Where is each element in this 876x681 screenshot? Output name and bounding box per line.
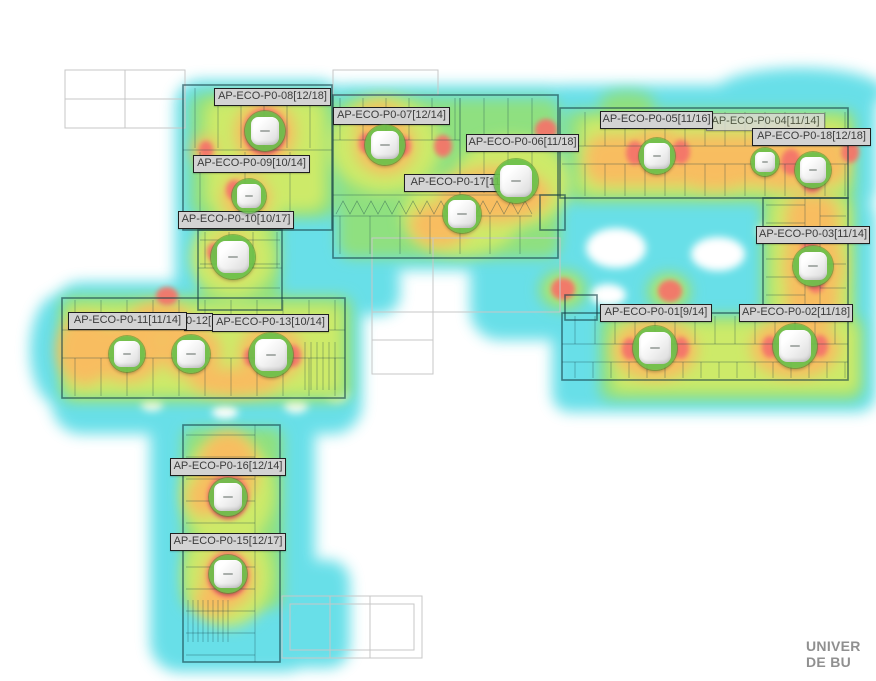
ap-icon-ap-eco-p0-17[interactable]: [443, 195, 481, 233]
ap-icon-ap-eco-p0-11[interactable]: [109, 336, 145, 372]
ap-icon-ap-eco-p0-04[interactable]: [751, 148, 779, 176]
ap-led-slot: [260, 130, 270, 132]
ap-icon-ap-eco-p0-16[interactable]: [209, 478, 247, 516]
ap-icon-ap-eco-p0-01[interactable]: [633, 326, 677, 370]
ap-icon-ap-eco-p0-10[interactable]: [211, 235, 255, 279]
ap-led-slot: [650, 347, 661, 349]
ap-led-slot: [266, 354, 277, 356]
access-point-device-icon: [177, 340, 204, 367]
ap-led-slot: [511, 180, 522, 182]
wifi-heatmap-floorplan-canvas[interactable]: 0-12[AP-ECO-P0-04[11/14]AP-ECO-P0-05[11/…: [0, 0, 876, 681]
ap-led-slot: [123, 353, 132, 355]
ap-led-slot: [653, 155, 662, 157]
ap-icon-ap-eco-p0-09[interactable]: [232, 179, 266, 213]
access-point-device-icon: [639, 332, 671, 364]
ap-icon-ap-eco-p0-02[interactable]: [773, 324, 817, 368]
ap-led-slot: [457, 213, 466, 215]
ap-led-slot: [228, 256, 239, 258]
access-point-device-icon: [799, 252, 828, 281]
ap-icon-ap-eco-p0-15[interactable]: [209, 555, 247, 593]
access-point-device-icon: [500, 165, 532, 197]
ap-icon-ap-eco-p0-12[interactable]: [172, 335, 210, 373]
access-point-device-icon: [237, 184, 262, 209]
ap-led-slot: [808, 265, 818, 267]
ap-icon-ap-eco-p0-05[interactable]: [639, 138, 675, 174]
ap-led-slot: [186, 353, 195, 355]
ap-icon-ap-eco-p0-06[interactable]: [494, 159, 538, 203]
ap-led-slot: [223, 496, 232, 498]
ap-icon-ap-eco-p0-08[interactable]: [245, 111, 285, 151]
ap-icon-ap-eco-p0-03[interactable]: [793, 246, 833, 286]
ap-led-slot: [380, 144, 390, 146]
ap-icon-ap-eco-p0-13[interactable]: [249, 333, 293, 377]
ap-led-slot: [809, 169, 818, 171]
access-point-device-icon: [371, 131, 400, 160]
access-point-device-icon: [114, 341, 140, 367]
ap-led-slot: [223, 573, 232, 575]
access-point-device-icon: [214, 483, 241, 510]
access-point-device-icon: [255, 339, 287, 371]
ap-led-slot: [762, 161, 769, 163]
access-point-device-icon: [755, 152, 775, 172]
access-point-device-icon: [217, 241, 249, 273]
access-point-device-icon: [800, 157, 826, 183]
ap-icon-ap-eco-p0-07[interactable]: [365, 125, 405, 165]
access-point-device-icon: [251, 117, 280, 146]
access-point-device-icon: [214, 560, 241, 587]
ap-icon-ap-eco-p0-18[interactable]: [795, 152, 831, 188]
ap-icon-layer: [0, 0, 876, 681]
access-point-device-icon: [448, 200, 475, 227]
ap-led-slot: [245, 195, 253, 197]
access-point-device-icon: [779, 330, 811, 362]
ap-led-slot: [790, 345, 801, 347]
access-point-device-icon: [644, 143, 670, 169]
